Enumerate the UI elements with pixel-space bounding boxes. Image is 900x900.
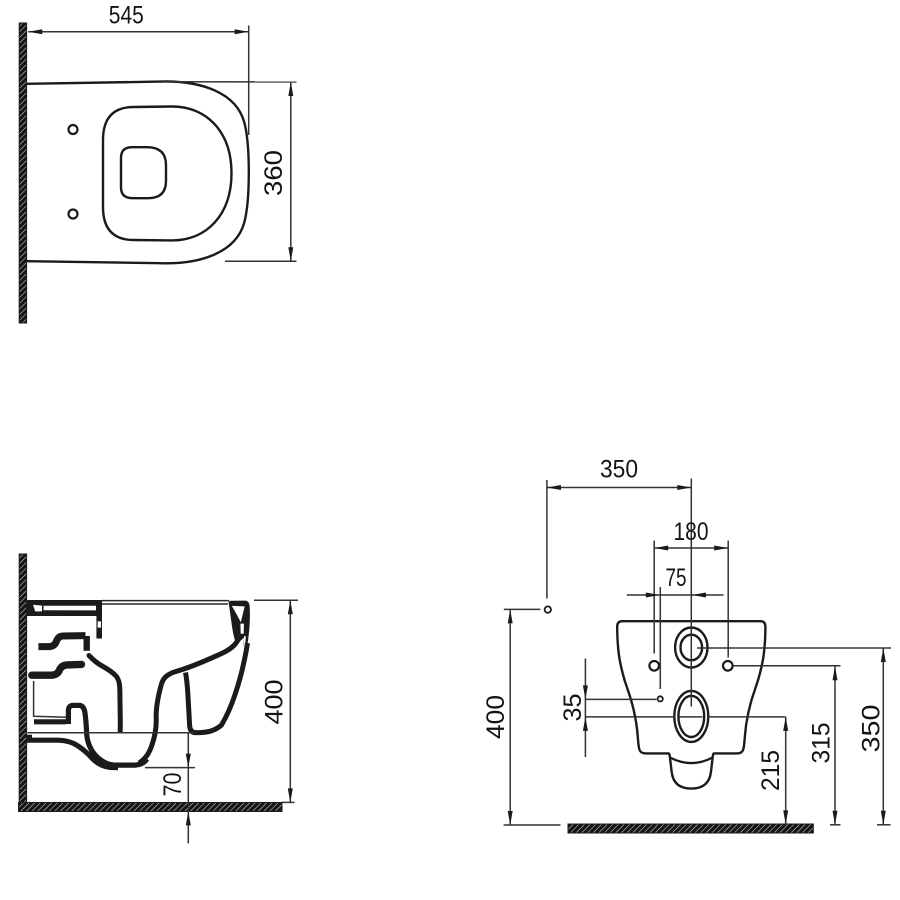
svg-text:400: 400: [261, 680, 289, 725]
svg-text:75: 75: [666, 564, 687, 592]
svg-text:360: 360: [260, 150, 288, 196]
svg-text:315: 315: [808, 723, 836, 764]
svg-text:400: 400: [482, 695, 510, 739]
svg-text:350: 350: [858, 705, 886, 753]
svg-text:70: 70: [159, 773, 187, 797]
svg-text:35: 35: [559, 694, 587, 722]
svg-text:350: 350: [600, 456, 638, 484]
svg-text:215: 215: [757, 750, 785, 791]
svg-text:180: 180: [674, 518, 709, 546]
svg-text:545: 545: [109, 2, 144, 30]
